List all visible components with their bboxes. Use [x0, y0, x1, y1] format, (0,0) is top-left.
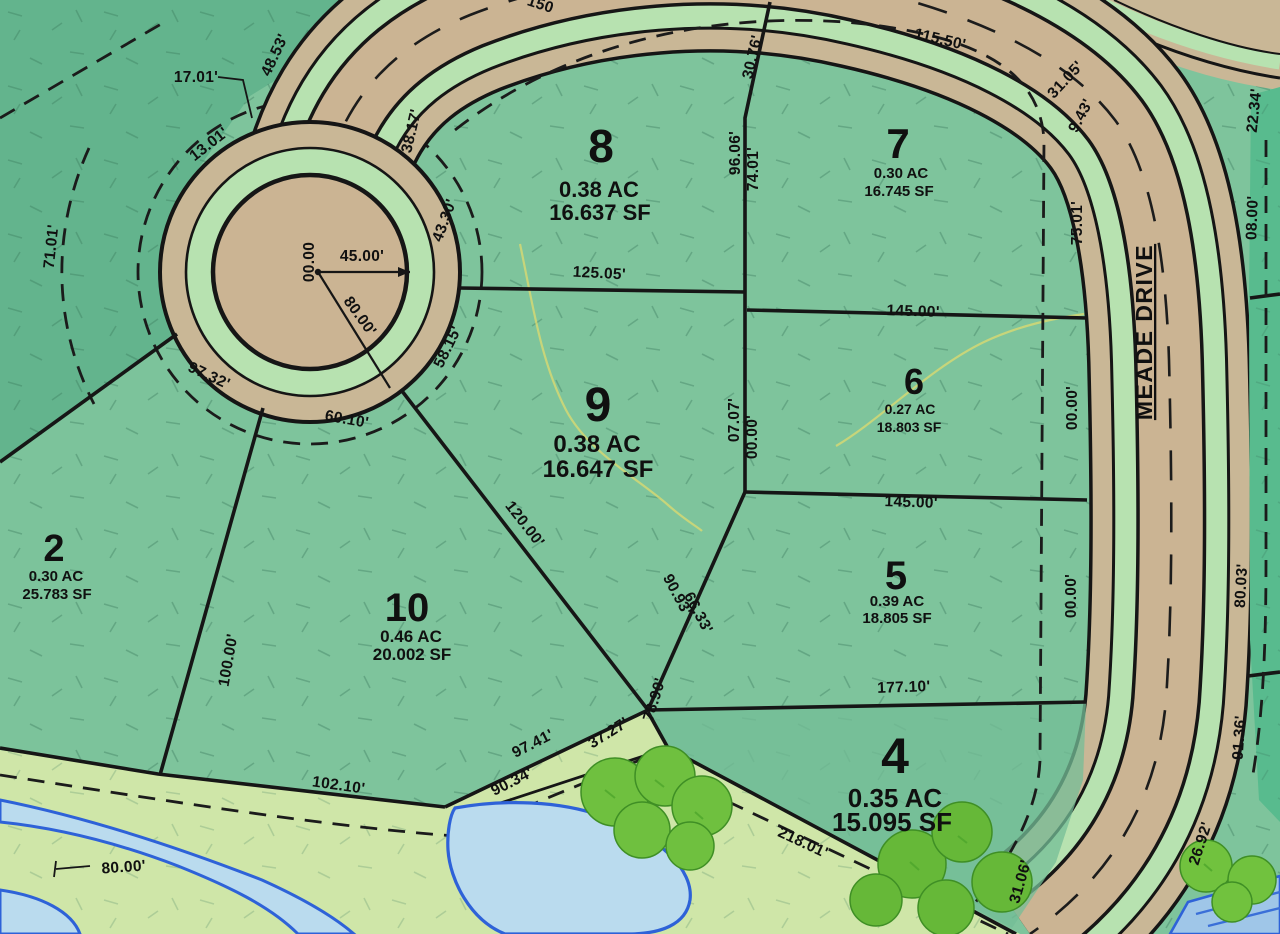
lot-2-number: 2	[43, 528, 64, 570]
lot-9-number: 9	[585, 379, 612, 432]
lot-7-area: 16.745 SF	[864, 183, 933, 200]
lot-5-acreage: 0.39 AC	[870, 593, 925, 610]
tree	[666, 822, 714, 870]
lot-2-acreage: 0.30 AC	[29, 568, 84, 585]
dimension-label: 125.05'	[572, 264, 626, 284]
street-label-meade-drive: MEADE DRIVE	[1131, 244, 1157, 420]
lot-9-acreage: 0.38 AC	[553, 431, 640, 458]
lot-6-number: 6	[904, 361, 924, 402]
dimension-label: 177.10'	[877, 678, 931, 697]
lot-6-area: 18.803 SF	[877, 419, 942, 435]
dimension-label: 45.00'	[340, 248, 384, 265]
dimension-label: 145.00'	[886, 302, 940, 321]
tree	[918, 880, 974, 934]
dimension-label: 00.00	[301, 242, 318, 282]
lot-7-acreage: 0.30 AC	[874, 165, 929, 182]
tree	[1212, 882, 1252, 922]
lot-5-number: 5	[885, 554, 907, 598]
dimension-label: 75.01'	[1069, 201, 1086, 245]
dimension-label: 80.03'	[1232, 563, 1251, 608]
dimension-label: 08.00'	[1243, 195, 1262, 240]
lot-9-area: 16.647 SF	[543, 456, 654, 483]
plat-map-page: 8 0.38 AC 16.637 SF 7 0.30 AC 16.745 SF …	[0, 0, 1280, 934]
lot-5-area: 18.805 SF	[862, 610, 931, 627]
dimension-label: 00.00'	[744, 415, 761, 459]
tree	[614, 802, 670, 858]
lot-4-area: 15.095 SF	[832, 807, 952, 837]
dimension-label: 17.01'	[174, 69, 218, 86]
lot-8-acreage: 0.38 AC	[559, 177, 639, 202]
dimension-label: 80.00'	[101, 857, 146, 877]
lot-10-area: 20.002 SF	[373, 645, 451, 664]
lot-6-acreage: 0.27 AC	[885, 401, 936, 417]
lot-4-number: 4	[881, 728, 909, 784]
dimension-label: 145.00'	[884, 493, 938, 512]
tree	[850, 874, 902, 926]
lot-8-area: 16.637 SF	[549, 200, 651, 225]
plat-map: 8 0.38 AC 16.637 SF 7 0.30 AC 16.745 SF …	[0, 0, 1280, 934]
lot-7-number: 7	[886, 120, 909, 167]
dimension-label: 00.00'	[1064, 386, 1081, 430]
dimension-label: 07.07'	[726, 398, 743, 442]
lot-2-area: 25.783 SF	[22, 586, 91, 603]
dimension-label: 96.06'	[727, 131, 744, 175]
dimension-label: 00.00'	[1063, 574, 1080, 618]
dimension-label: 74.01'	[745, 147, 762, 191]
lot-10-acreage: 0.46 AC	[380, 627, 442, 646]
dimension-label: 91.36'	[1229, 715, 1249, 760]
lot-10-number: 10	[385, 586, 430, 630]
lot-8-number: 8	[588, 120, 614, 172]
